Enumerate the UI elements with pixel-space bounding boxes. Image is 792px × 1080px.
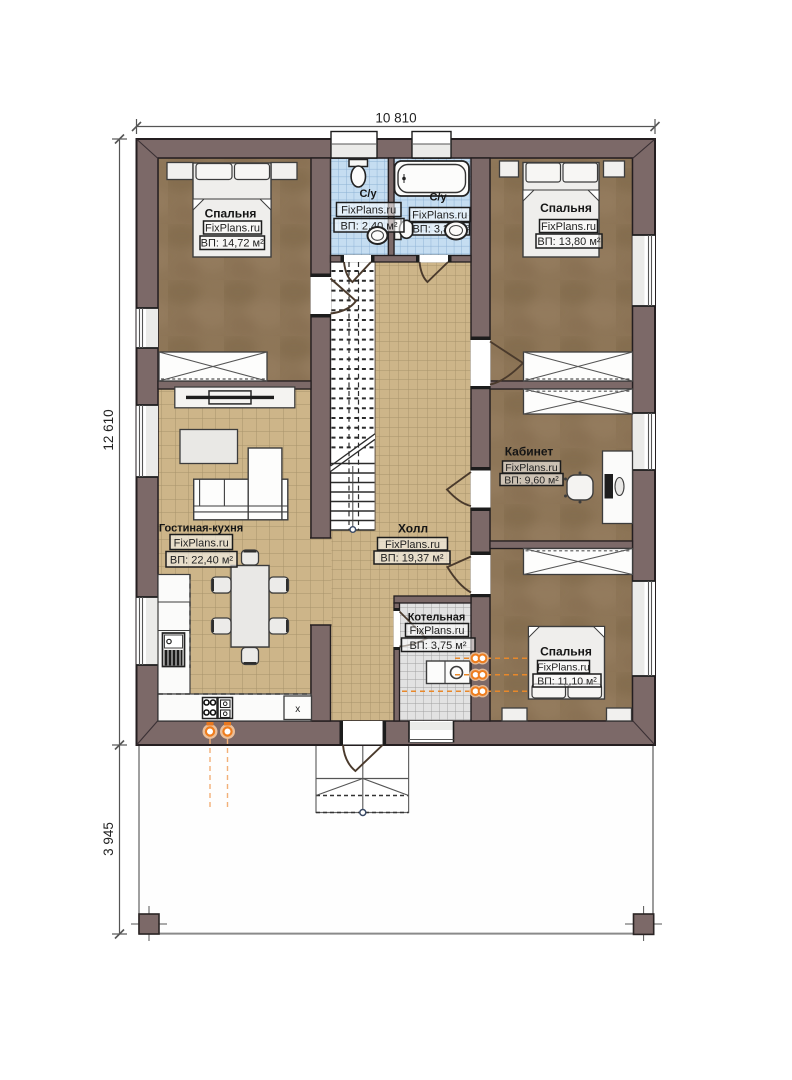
- svg-text:ВП: 9,60 м²: ВП: 9,60 м²: [504, 474, 559, 486]
- svg-text:FixPlans.ru: FixPlans.ru: [385, 539, 440, 551]
- svg-text:FixPlans.ru: FixPlans.ru: [205, 223, 260, 235]
- svg-text:Гостиная-кухня: Гостиная-кухня: [159, 523, 243, 535]
- svg-text:ВП: 11,10 м²: ВП: 11,10 м²: [537, 675, 597, 687]
- svg-text:FixPlans.ru: FixPlans.ru: [409, 625, 464, 637]
- svg-text:С/у: С/у: [359, 188, 377, 200]
- svg-text:FixPlans.ru: FixPlans.ru: [174, 537, 229, 549]
- svg-text:ВП: 22,40 м²: ВП: 22,40 м²: [170, 555, 234, 567]
- svg-text:С/у: С/у: [429, 192, 447, 204]
- svg-text:Спальня: Спальня: [205, 207, 257, 221]
- svg-text:Спальня: Спальня: [540, 201, 592, 215]
- svg-text:Котельная: Котельная: [408, 612, 466, 624]
- svg-text:FixPlans.ru: FixPlans.ru: [341, 205, 396, 217]
- svg-text:FixPlans.ru: FixPlans.ru: [541, 221, 596, 233]
- svg-text:ВП: 13,80 м²: ВП: 13,80 м²: [537, 236, 601, 248]
- svg-text:x: x: [295, 704, 300, 715]
- svg-text:Холл: Холл: [398, 522, 428, 536]
- svg-text:ВП: 14,72 м²: ВП: 14,72 м²: [201, 238, 265, 250]
- svg-text:FixPlans.ru: FixPlans.ru: [412, 210, 467, 222]
- svg-text:Кабинет: Кабинет: [505, 445, 554, 459]
- svg-text:Спальня: Спальня: [540, 645, 592, 659]
- svg-text:FixPlans.ru: FixPlans.ru: [537, 662, 590, 674]
- svg-text:ВП: 19,37 м²: ВП: 19,37 м²: [380, 553, 444, 565]
- svg-text:FixPlans.ru: FixPlans.ru: [505, 462, 558, 474]
- svg-text:3 945: 3 945: [101, 822, 116, 856]
- svg-text:10 810: 10 810: [375, 111, 416, 126]
- svg-text:12 610: 12 610: [101, 409, 116, 450]
- svg-text:ВП: 3,75 м²: ВП: 3,75 м²: [409, 640, 466, 652]
